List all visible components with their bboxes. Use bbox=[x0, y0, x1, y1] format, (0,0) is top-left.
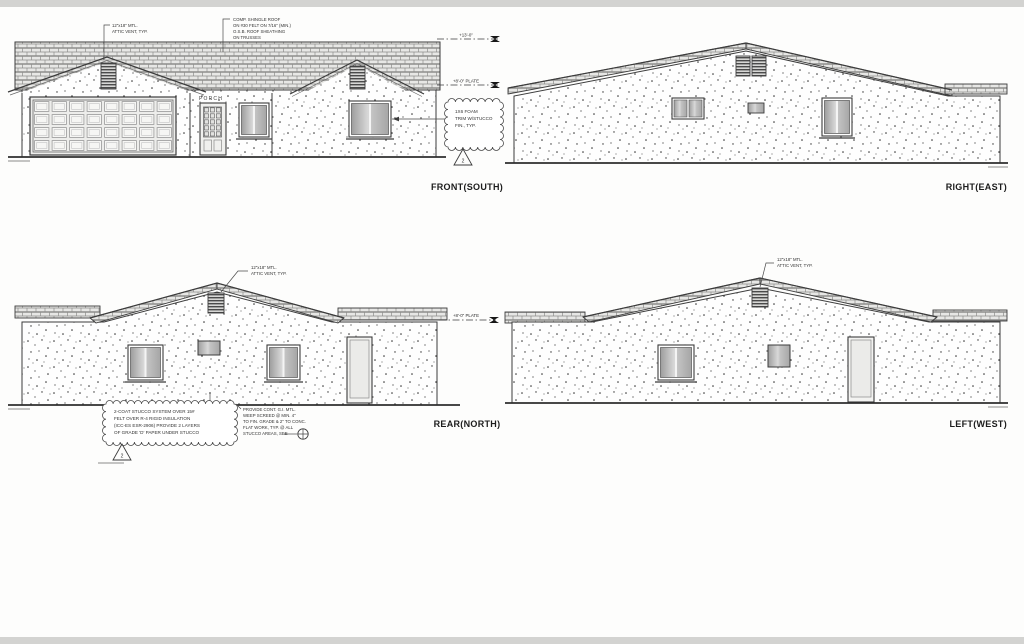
left-right-eave-band bbox=[933, 310, 1007, 321]
stucco-note: 2-COAT STUCCO SYSTEM OVER 15# FELT OVER … bbox=[98, 392, 238, 463]
porch-window bbox=[236, 103, 272, 139]
rear-attic-vent bbox=[208, 293, 224, 313]
left-door-panel bbox=[851, 340, 871, 397]
left-small-window bbox=[768, 345, 790, 367]
rear-window-2 bbox=[264, 345, 303, 382]
right-window-pair bbox=[672, 98, 704, 119]
rear-attic-vent-text: 12"x18" MTL. ATTIC VENT, TYP. bbox=[251, 265, 287, 276]
rear-elevation-label: REAR(NORTH) bbox=[434, 419, 501, 429]
front-elevation-label: FRONT(SOUTH) bbox=[431, 182, 503, 192]
front-height-markers: +13'-0" +8'-0" PLATE bbox=[437, 33, 500, 89]
left-elevation: 12"x18" MTL. ATTIC VENT, TYP. LEFT(WEST) bbox=[505, 257, 1008, 429]
left-door bbox=[848, 337, 874, 402]
ridge-height-label: +13'-0" bbox=[459, 33, 473, 38]
right-window bbox=[819, 98, 855, 138]
weep-screed-text: PROVIDE CONT. G.I. MTL. WEEP SCREED @ MI… bbox=[243, 407, 307, 436]
rear-revision-number: 2 bbox=[121, 454, 124, 460]
front-left-attic-vent bbox=[101, 63, 116, 89]
right-window-pair-glass-left bbox=[674, 100, 687, 117]
entry-door-lites bbox=[204, 107, 222, 137]
left-left-eave-band bbox=[505, 312, 585, 323]
front-right-window bbox=[346, 101, 394, 139]
right-window-pair-glass-right bbox=[689, 100, 702, 117]
detail-reference-symbol bbox=[298, 429, 308, 439]
left-attic-vent-text: 12"x18" MTL. ATTIC VENT, TYP. bbox=[777, 257, 813, 268]
front-attic-vent-text: 12"x18" MTL. ATTIC VENT, TYP. bbox=[112, 23, 148, 34]
weep-screed-note: PROVIDE CONT. G.I. MTL. WEEP SCREED @ MI… bbox=[236, 404, 308, 439]
right-gable-vent-left bbox=[736, 56, 750, 76]
left-elevation-label: LEFT(WEST) bbox=[950, 419, 1008, 429]
garage-door-panels bbox=[33, 100, 173, 152]
rear-door bbox=[347, 337, 372, 403]
right-rear-wing-eave bbox=[945, 84, 1007, 94]
roof-note-text: COMP. SHINGLE ROOF ON #30 FELT ON 7/16" … bbox=[233, 17, 292, 40]
rear-small-window bbox=[198, 341, 220, 355]
rear-door-panel bbox=[350, 340, 369, 398]
left-attic-vent bbox=[752, 288, 768, 307]
rear-right-eave-band bbox=[338, 308, 447, 320]
front-elevation: PORCH bbox=[8, 17, 503, 192]
right-gable-vent-right bbox=[752, 56, 766, 76]
entry-door bbox=[200, 103, 226, 155]
elevation-sheet: PORCH bbox=[0, 0, 1024, 644]
garage-door bbox=[30, 97, 176, 155]
rear-height-marker: +8'-0" PLATE bbox=[439, 313, 499, 323]
rear-elevation: 12"x18" MTL. ATTIC VENT, TYP. bbox=[8, 265, 500, 463]
rear-window-1 bbox=[125, 345, 166, 382]
right-elevation-label: RIGHT(EAST) bbox=[946, 182, 1007, 192]
right-elevation: RIGHT(EAST) bbox=[505, 43, 1008, 192]
front-revision-number: 2 bbox=[462, 159, 465, 165]
left-window-1 bbox=[655, 345, 697, 382]
elevations-drawing: PORCH bbox=[0, 0, 1024, 644]
rear-plate-height-label: +8'-0" PLATE bbox=[453, 313, 479, 318]
right-small-vent-window bbox=[748, 103, 764, 113]
front-plate-height-label: +8'-0" PLATE bbox=[453, 79, 479, 84]
porch-label: PORCH bbox=[199, 96, 223, 102]
front-right-attic-vent bbox=[350, 66, 365, 89]
rear-left-eave-band bbox=[15, 306, 100, 318]
